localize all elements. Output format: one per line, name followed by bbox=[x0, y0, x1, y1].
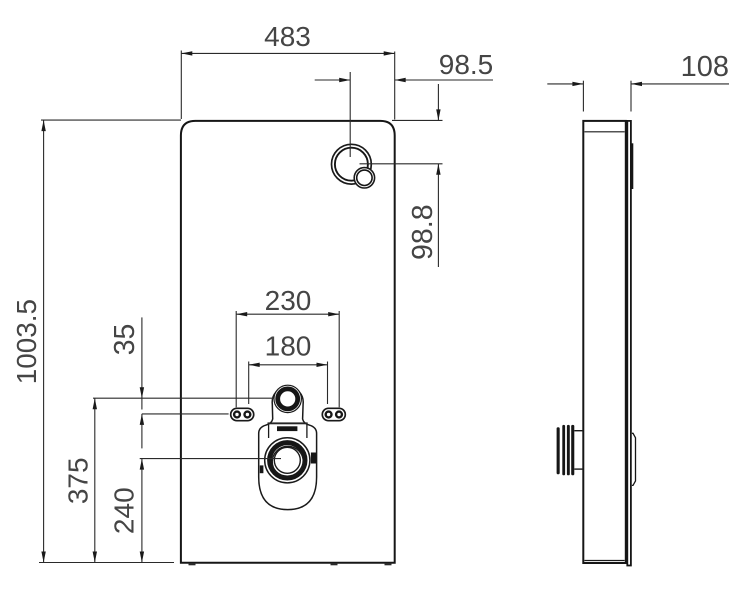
svg-text:108: 108 bbox=[681, 51, 729, 83]
svg-text:98.8: 98.8 bbox=[407, 204, 439, 260]
svg-text:98.5: 98.5 bbox=[439, 49, 494, 80]
svg-text:230: 230 bbox=[265, 285, 312, 316]
svg-text:375: 375 bbox=[63, 457, 94, 504]
svg-text:180: 180 bbox=[265, 331, 312, 362]
svg-text:240: 240 bbox=[108, 487, 139, 534]
svg-text:35: 35 bbox=[109, 324, 141, 356]
svg-text:483: 483 bbox=[264, 21, 311, 52]
svg-text:1003.5: 1003.5 bbox=[11, 299, 42, 384]
